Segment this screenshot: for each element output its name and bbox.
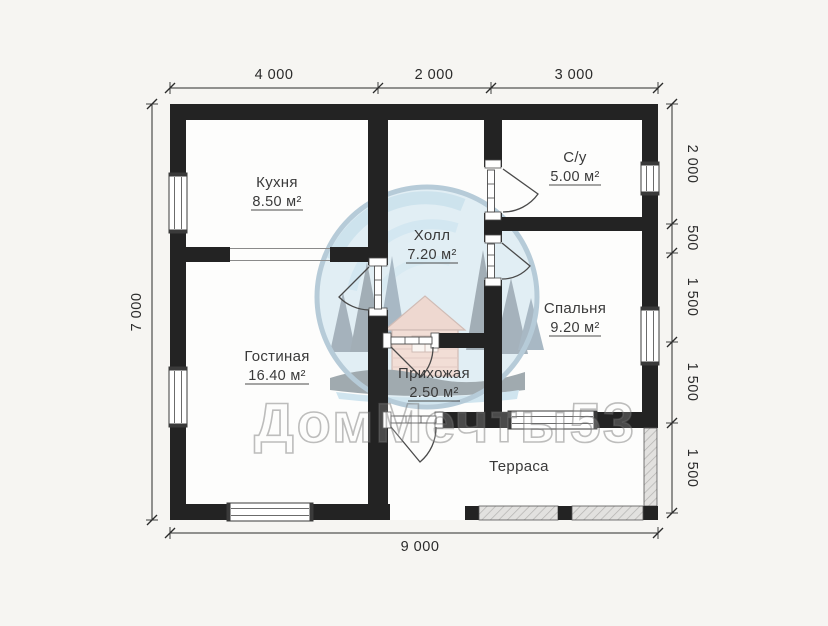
room-name: Терраса [489, 458, 549, 475]
floor-plan-canvas: ДомМечты53 Кухня 8.50 м² С/у 5.00 м² Хол… [0, 0, 828, 621]
room-area: 8.50 м² [252, 194, 301, 210]
room-name: Спальня [544, 300, 606, 317]
dimension-label: 9 000 [401, 539, 440, 555]
dimension-label: 500 [684, 225, 700, 251]
window-living-room-left [169, 367, 187, 427]
room-area: 16.40 м² [248, 368, 306, 384]
room-name: Холл [414, 227, 451, 244]
dimension-label: 7 000 [129, 293, 145, 332]
dimension-label: 2 000 [684, 145, 700, 184]
room-area: 5.00 м² [550, 169, 599, 185]
room-area: 9.20 м² [550, 320, 599, 336]
room-name: Кухня [256, 174, 298, 191]
window-living-room-bottom [227, 503, 313, 521]
dimension-label: 3 000 [555, 67, 594, 83]
dimension-label: 1 500 [684, 363, 700, 402]
floor-plan-page: ДомМечты53 Кухня 8.50 м² С/у 5.00 м² Хол… [0, 0, 828, 621]
room-name: Прихожая [398, 365, 470, 382]
room-area: 7.20 м² [407, 247, 456, 263]
dimension-label: 1 500 [684, 449, 700, 488]
dimension-label: 1 500 [684, 278, 700, 317]
window-bedroom-right [641, 307, 659, 365]
room-label-terrace: Терраса [489, 458, 549, 475]
window-bathroom [641, 162, 659, 195]
room-area: 2.50 м² [409, 385, 458, 401]
dimension-label: 4 000 [255, 67, 294, 83]
room-name: Гостиная [244, 348, 309, 365]
window-kitchen [169, 173, 187, 233]
dimension-label: 2 000 [415, 67, 454, 83]
room-name: С/у [563, 149, 587, 166]
